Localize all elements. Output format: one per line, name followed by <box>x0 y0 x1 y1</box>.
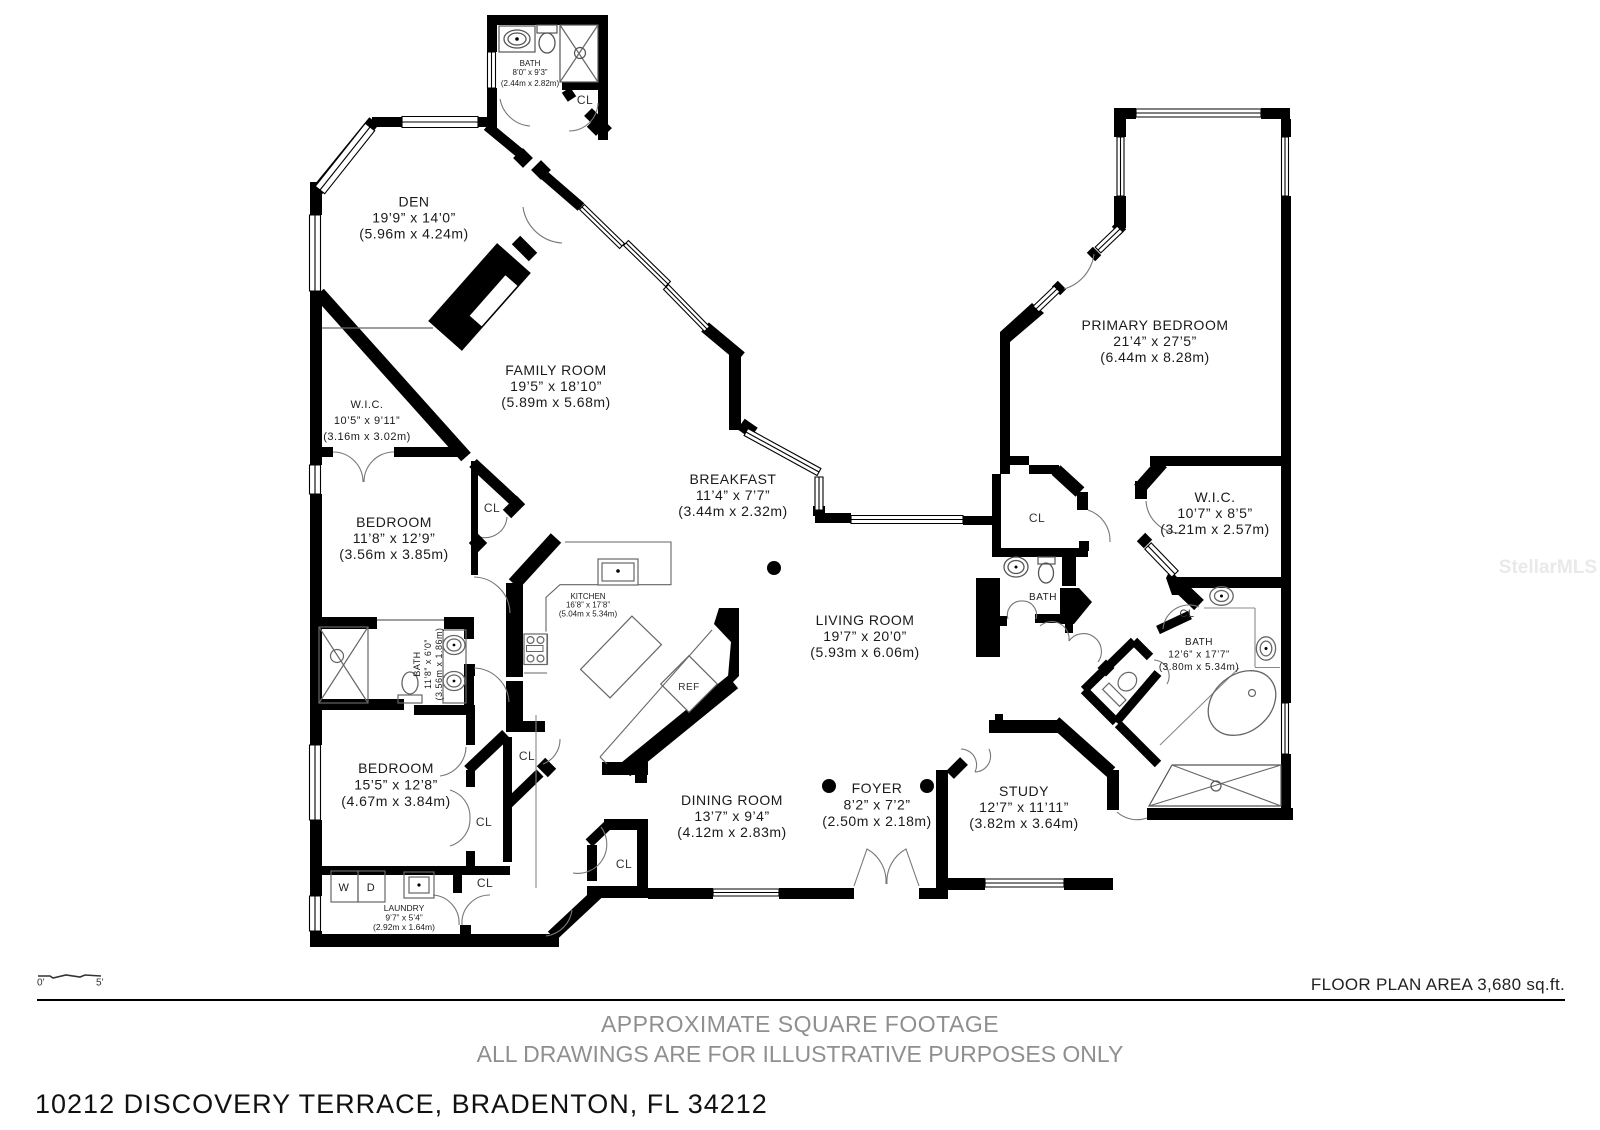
svg-text:D: D <box>367 882 375 894</box>
svg-text:13’7” x 9’4”: 13’7” x 9’4” <box>694 808 769 824</box>
svg-text:19’7” x 20’0”: 19’7” x 20’0” <box>823 628 907 644</box>
svg-text:5’: 5’ <box>96 978 104 989</box>
svg-text:APPROXIMATE SQUARE FOOTAGE: APPROXIMATE SQUARE FOOTAGE <box>601 1011 999 1037</box>
svg-text:10’7” x 8’5”: 10’7” x 8’5” <box>1177 505 1252 521</box>
svg-text:ALL DRAWINGS ARE FOR ILLUSTRAT: ALL DRAWINGS ARE FOR ILLUSTRATIVE PURPOS… <box>477 1041 1124 1067</box>
svg-text:CL: CL <box>477 876 493 890</box>
svg-text:BATH: BATH <box>1029 592 1057 603</box>
svg-text:CL: CL <box>1029 511 1045 525</box>
svg-text:STUDY: STUDY <box>999 783 1049 799</box>
svg-text:(3.56m x 3.85m): (3.56m x 3.85m) <box>339 546 448 562</box>
svg-text:FOYER: FOYER <box>852 780 903 796</box>
svg-text:LIVING ROOM: LIVING ROOM <box>816 612 915 628</box>
svg-text:BATH: BATH <box>520 59 541 68</box>
svg-text:(2.44m x 2.82m): (2.44m x 2.82m) <box>501 79 560 88</box>
svg-text:(3.16m x 3.02m): (3.16m x 3.02m) <box>323 431 411 443</box>
svg-text:BREAKFAST: BREAKFAST <box>690 471 777 487</box>
svg-text:StellarMLS: StellarMLS <box>1499 557 1597 578</box>
svg-text:W.I.C.: W.I.C. <box>351 399 384 411</box>
svg-text:LAUNDRY: LAUNDRY <box>384 903 425 913</box>
svg-text:(4.67m x 3.84m): (4.67m x 3.84m) <box>341 793 450 809</box>
svg-text:11’8” x 12’9”: 11’8” x 12’9” <box>353 530 436 546</box>
svg-text:DINING ROOM: DINING ROOM <box>681 792 783 808</box>
svg-text:10’5” x 9’11”: 10’5” x 9’11” <box>334 415 400 427</box>
svg-text:CL: CL <box>519 749 535 763</box>
svg-text:BEDROOM: BEDROOM <box>356 514 432 530</box>
svg-text:(6.44m x 8.28m): (6.44m x 8.28m) <box>1100 349 1209 365</box>
svg-text:BATH: BATH <box>1185 637 1213 648</box>
svg-text:CL: CL <box>484 501 500 515</box>
svg-text:W: W <box>339 882 350 894</box>
svg-text:FAMILY ROOM: FAMILY ROOM <box>505 362 606 378</box>
svg-text:BATH: BATH <box>412 651 422 676</box>
svg-text:16’8” x 17’8”: 16’8” x 17’8” <box>566 601 610 610</box>
svg-text:(5.04m x 5.34m): (5.04m x 5.34m) <box>559 610 618 619</box>
svg-text:PRIMARY BEDROOM: PRIMARY BEDROOM <box>1081 317 1228 333</box>
svg-text:10212 DISCOVERY TERRACE, BRADE: 10212 DISCOVERY TERRACE, BRADENTON, FL 3… <box>35 1089 768 1119</box>
svg-text:(3.82m x 3.64m): (3.82m x 3.64m) <box>969 815 1078 831</box>
svg-text:(3.56m x 1.86m): (3.56m x 1.86m) <box>434 627 444 700</box>
svg-text:19’5” x 18’10”: 19’5” x 18’10” <box>510 378 602 394</box>
svg-text:CL: CL <box>476 815 492 829</box>
svg-text:BEDROOM: BEDROOM <box>358 760 434 776</box>
svg-text:(3.80m x 5.34m): (3.80m x 5.34m) <box>1159 662 1239 673</box>
svg-text:8’2” x 7’2”: 8’2” x 7’2” <box>844 797 911 813</box>
svg-text:(3.21m x 2.57m): (3.21m x 2.57m) <box>1160 521 1269 537</box>
svg-text:(3.44m x 2.32m): (3.44m x 2.32m) <box>678 503 787 519</box>
svg-text:0’: 0’ <box>37 978 45 989</box>
svg-text:9’7” x 5’4”: 9’7” x 5’4” <box>385 913 422 923</box>
svg-text:11’8” x 6’0”: 11’8” x 6’0” <box>423 639 433 689</box>
svg-text:15’5” x 12’8”: 15’5” x 12’8” <box>354 777 438 793</box>
svg-text:(2.92m x 1.64m): (2.92m x 1.64m) <box>373 922 435 932</box>
svg-text:11’4” x 7’7”: 11’4” x 7’7” <box>696 487 770 503</box>
svg-text:(5.89m x 5.68m): (5.89m x 5.68m) <box>501 394 610 410</box>
svg-text:12’6” x 17’7”: 12’6” x 17’7” <box>1168 650 1230 661</box>
svg-text:8’0” x 9’3”: 8’0” x 9’3” <box>512 68 547 77</box>
svg-text:W.I.C.: W.I.C. <box>1194 489 1235 505</box>
svg-text:19’9” x 14’0”: 19’9” x 14’0” <box>372 210 456 226</box>
svg-text:(5.96m x 4.24m): (5.96m x 4.24m) <box>359 226 468 242</box>
svg-text:(5.93m x 6.06m): (5.93m x 6.06m) <box>810 644 919 660</box>
svg-text:DEN: DEN <box>398 194 429 210</box>
svg-text:CL: CL <box>1179 608 1194 620</box>
svg-text:21’4” x 27’5”: 21’4” x 27’5” <box>1113 333 1197 349</box>
svg-text:CL: CL <box>616 857 632 871</box>
svg-text:REF: REF <box>678 682 700 693</box>
svg-text:(4.12m x 2.83m): (4.12m x 2.83m) <box>677 824 786 840</box>
svg-text:12’7” x 11’11”: 12’7” x 11’11” <box>979 799 1069 815</box>
svg-text:CL: CL <box>577 93 593 107</box>
svg-text:FLOOR PLAN AREA 3,680 sq.ft.: FLOOR PLAN AREA 3,680 sq.ft. <box>1311 975 1565 994</box>
svg-text:(2.50m x 2.18m): (2.50m x 2.18m) <box>822 813 931 829</box>
